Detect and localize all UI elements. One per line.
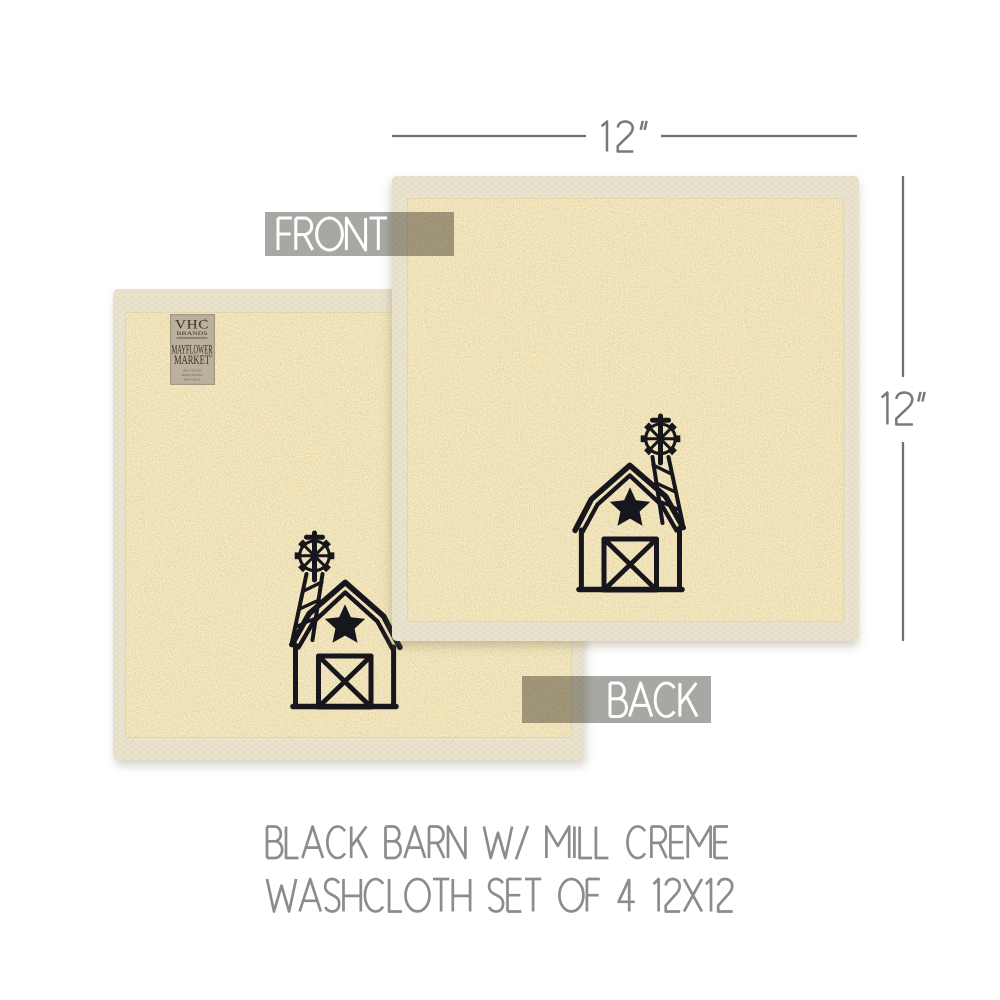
svg-text:BRANDS: BRANDS [177, 331, 208, 337]
svg-text:100% COTTON: 100% COTTON [183, 369, 203, 373]
svg-text:MARKET: MARKET [174, 353, 210, 367]
svg-text:®: ® [209, 354, 212, 359]
svg-text:RN# 330011: RN# 330011 [184, 378, 201, 382]
svg-text:®: ® [203, 318, 206, 323]
svg-text:MADE IN INDIA: MADE IN INDIA [182, 373, 204, 377]
